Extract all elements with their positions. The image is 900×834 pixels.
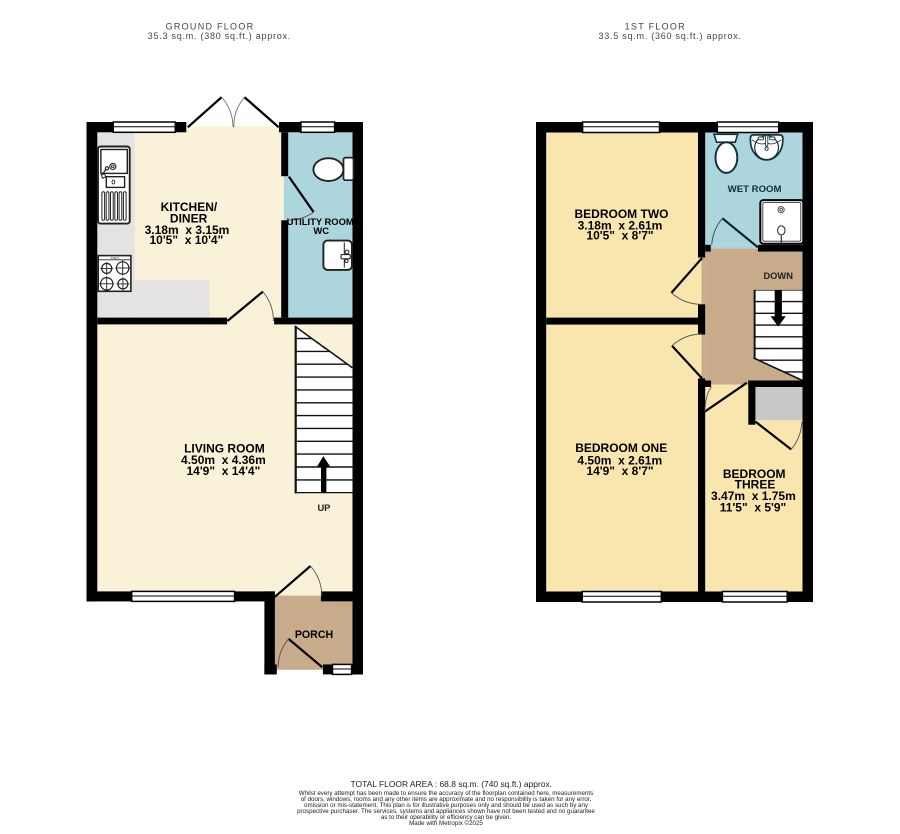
- svg-text:OVENS: OVENS: [110, 257, 119, 260]
- svg-text:11'5" x 5'9": 11'5" x 5'9": [720, 500, 786, 514]
- svg-text:DOWN: DOWN: [763, 271, 793, 281]
- svg-text:Made with Metropix ©2025: Made with Metropix ©2025: [409, 820, 483, 827]
- svg-text:GROUND FLOOR: GROUND FLOOR: [166, 22, 255, 32]
- svg-text:TOTAL FLOOR AREA : 68.8 sq.m.: TOTAL FLOOR AREA : 68.8 sq.m. (740 sq.ft…: [351, 779, 552, 789]
- svg-text:WC: WC: [313, 225, 329, 236]
- svg-text:14'9" x 8'7": 14'9" x 8'7": [586, 464, 653, 478]
- svg-text:1ST FLOOR: 1ST FLOOR: [625, 22, 686, 32]
- svg-text:10'5" x 10'4": 10'5" x 10'4": [149, 233, 223, 247]
- svg-text:14'9" x 14'4": 14'9" x 14'4": [186, 464, 260, 478]
- svg-text:33.5 sq.m. (360 sq.ft.) approx: 33.5 sq.m. (360 sq.ft.) approx.: [598, 31, 741, 41]
- svg-text:UP: UP: [317, 503, 330, 513]
- svg-text:35.3 sq.m. (380 sq.ft.) approx: 35.3 sq.m. (380 sq.ft.) approx.: [148, 31, 291, 41]
- svg-text:10'5" x 8'7": 10'5" x 8'7": [586, 228, 653, 242]
- svg-text:WET ROOM: WET ROOM: [728, 184, 782, 195]
- svg-text:PORCH: PORCH: [295, 629, 333, 641]
